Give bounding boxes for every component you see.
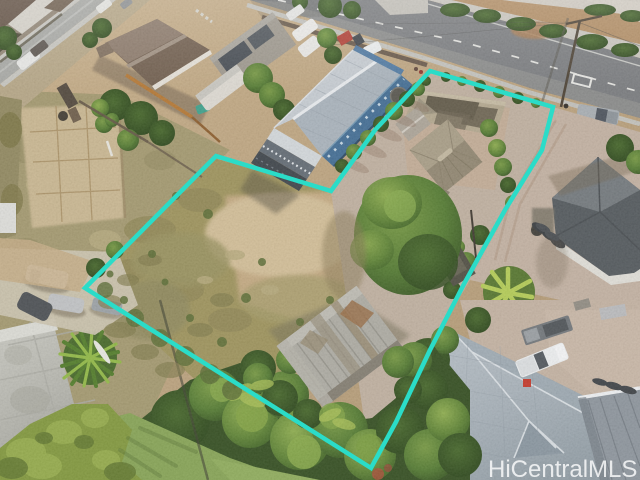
- svg-text:HiCentralMLS: HiCentralMLS: [488, 456, 637, 480]
